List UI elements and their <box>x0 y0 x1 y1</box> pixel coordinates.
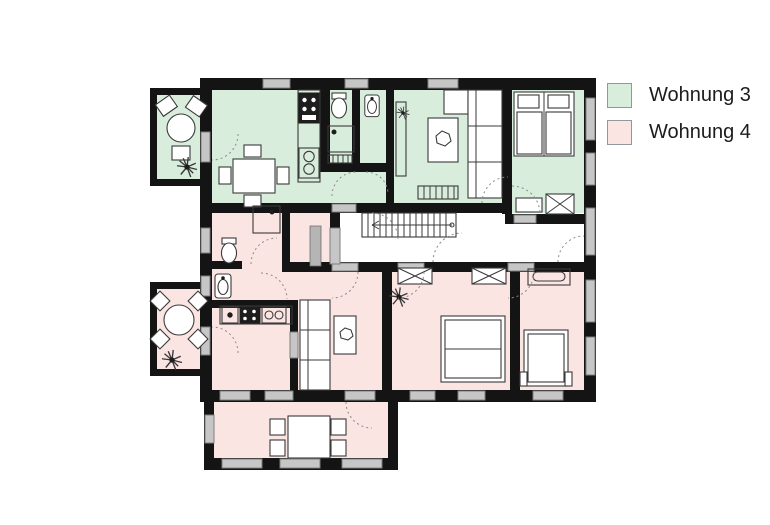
sink-icon <box>215 274 231 298</box>
wall-hall-south <box>282 262 584 272</box>
door-apt3-entry <box>332 204 356 212</box>
window-south-4 <box>458 391 485 400</box>
window-right-5 <box>586 337 595 375</box>
sunroom-chair <box>331 419 346 435</box>
floor-plan <box>0 0 770 525</box>
single-bed <box>524 330 568 386</box>
door-kitchen4-living4 <box>290 332 298 358</box>
window-top-2 <box>345 79 368 88</box>
legend-label-wohnung-3: Wohnung 3 <box>649 84 751 107</box>
legend-item-wohnung-4: Wohnung 4 <box>607 120 751 145</box>
window-right-4 <box>586 280 595 322</box>
window-south-2 <box>265 391 293 400</box>
pillow <box>518 95 539 108</box>
sofa <box>300 300 330 390</box>
pillow <box>548 95 569 108</box>
window-right-1 <box>586 98 595 140</box>
window-right-3 <box>586 208 595 255</box>
sofa-corner <box>444 90 468 114</box>
sofa <box>468 90 502 198</box>
sunroom-chair <box>270 440 285 456</box>
staircase <box>362 213 456 237</box>
legend: Wohnung 3 Wohnung 4 <box>607 83 751 157</box>
wall-bath3-vestibule <box>320 163 394 172</box>
balcony3-chair <box>172 146 190 160</box>
stove-icon <box>240 307 260 323</box>
entry-door-leaf <box>310 226 321 266</box>
window-top-3 <box>428 79 458 88</box>
window-top-1 <box>263 79 290 88</box>
wall-living3-bedroom3 <box>502 90 512 214</box>
window-south-5 <box>533 391 563 400</box>
sunroom-chair <box>331 440 346 456</box>
door-storage <box>330 228 340 264</box>
wall-bath4-storage <box>282 213 290 266</box>
door-bedroom2 <box>508 263 534 271</box>
window-left-2 <box>201 276 210 296</box>
toilet-icon <box>222 238 237 263</box>
door-balcony-upper <box>201 132 210 162</box>
door-sunroom <box>345 391 375 400</box>
toilet-icon <box>332 93 347 118</box>
sunroom-table <box>288 416 330 458</box>
coffee-table <box>428 118 458 162</box>
window-right-2 <box>586 153 595 185</box>
balcony4-table <box>164 305 194 335</box>
legend-swatch-wohnung-4 <box>607 120 632 145</box>
wall-bedroom1-bedroom2 <box>510 272 520 390</box>
window-sunroom-1 <box>222 459 262 468</box>
legend-label-wohnung-4: Wohnung 4 <box>649 121 751 144</box>
window-sunroom-2 <box>280 459 320 468</box>
window-south-1 <box>220 391 250 400</box>
dresser <box>516 198 542 212</box>
floorplan-page: Wohnung 3 Wohnung 4 <box>0 0 770 525</box>
dining-chair <box>277 167 289 184</box>
dining-chair <box>244 195 261 207</box>
window-left-1 <box>201 228 210 253</box>
wall-bath3-wc3 <box>352 90 360 165</box>
dining-chair <box>219 167 231 184</box>
legend-swatch-wohnung-3 <box>607 83 632 108</box>
wall-wc3-living3 <box>386 90 394 203</box>
window-south-3 <box>410 391 435 400</box>
window-sunroom-left <box>205 415 214 443</box>
legend-item-wohnung-3: Wohnung 3 <box>607 83 751 108</box>
window-sunroom-3 <box>342 459 382 468</box>
dining-table <box>233 159 275 193</box>
sink-icon <box>365 95 379 117</box>
dining-chair <box>244 145 261 157</box>
balcony3-table <box>167 114 195 142</box>
sunroom-chair <box>270 419 285 435</box>
door-bedroom3 <box>514 215 536 223</box>
wall-living4-bedroom1 <box>382 272 392 390</box>
